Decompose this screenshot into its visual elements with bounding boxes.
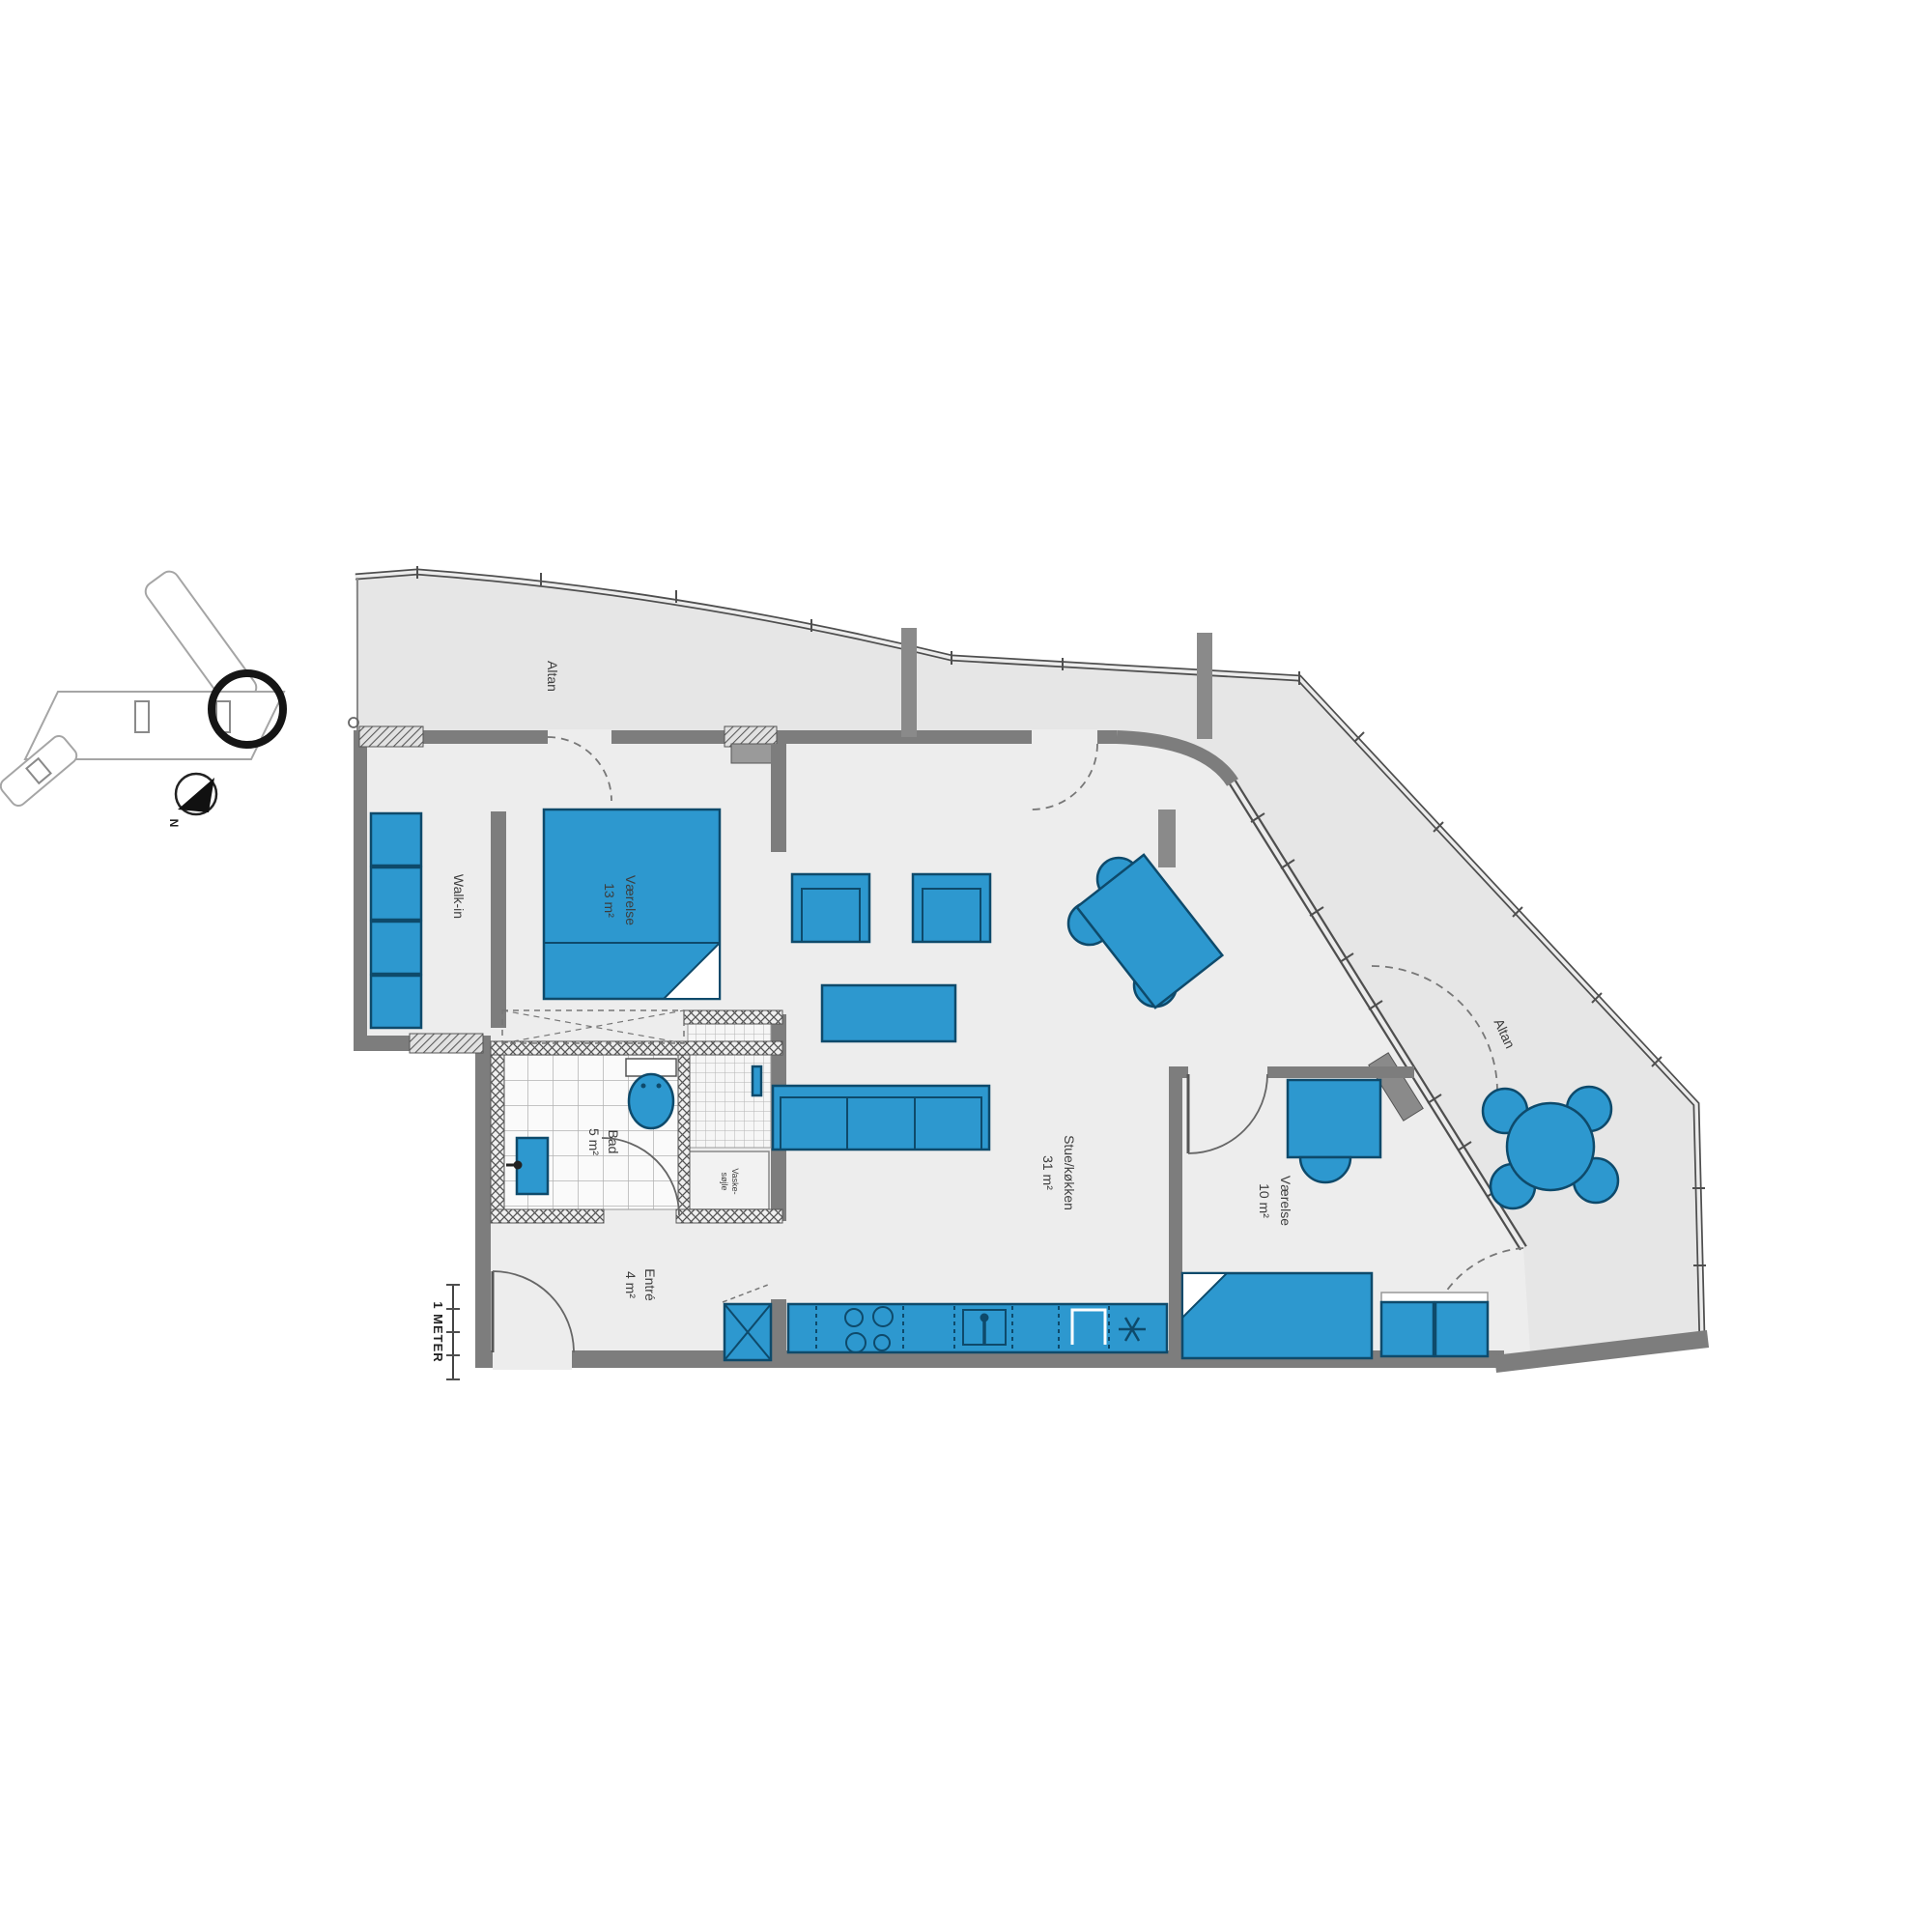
room-label-balcony-top: Altan (545, 661, 560, 692)
toilet-bowl (629, 1074, 673, 1128)
coffee-table (822, 985, 955, 1041)
locator-unit-marker-1 (135, 701, 149, 732)
shower-wall-top (684, 1010, 782, 1024)
scale-bar-label: 1 METER (431, 1301, 445, 1362)
room-label-laundry-line1: Vaske- (730, 1168, 740, 1194)
window-west-wing (410, 1034, 483, 1053)
floor-plan-drawing: N 1 METER Altan Walk-in Værelse 13 m² Ba… (0, 0, 1932, 1932)
room-label-entry: Entré (642, 1268, 658, 1301)
sink-drain (514, 1161, 523, 1170)
bedroom2-north-wall-b (1267, 1066, 1414, 1078)
room-label-bedroom1: Værelse (623, 875, 639, 925)
north-arrow-icon (178, 778, 214, 812)
shower-fixture (753, 1066, 761, 1095)
north-compass: N (167, 774, 216, 827)
bathroom-wall-bottom-left (491, 1209, 604, 1223)
scale-bar: 1 METER (431, 1285, 460, 1379)
bathroom-wall-left (491, 1055, 504, 1223)
west-lower-wall (475, 1036, 491, 1368)
toilet (626, 1059, 676, 1128)
room-area-entry: 4 m² (623, 1271, 639, 1298)
room-label-laundry-line2: søjle (720, 1172, 729, 1190)
toilet-button-left (641, 1084, 646, 1089)
walkin-divider-wall (491, 811, 506, 1028)
dresser-2 (1435, 1302, 1488, 1356)
armchair-1 (792, 874, 869, 942)
armchair-2 (913, 874, 990, 942)
dresser-1 (1381, 1302, 1434, 1356)
entrance-door-opening (493, 1349, 572, 1370)
dresser-shelf (1381, 1293, 1488, 1302)
room-area-bedroom2: 10 m² (1257, 1183, 1272, 1218)
floor-plan-page: N 1 METER Altan Walk-in Værelse 13 m² Ba… (0, 0, 1932, 1932)
room-label-bedroom2: Værelse (1278, 1176, 1293, 1226)
living-balcony-door-opening (1032, 729, 1097, 745)
room-label-bathroom: Bad (606, 1130, 621, 1154)
room-area-living-kitchen: 31 m² (1040, 1155, 1056, 1190)
sofa (773, 1086, 989, 1150)
radiator (731, 744, 776, 763)
living-west-wall-upper (771, 744, 786, 852)
west-wall (354, 737, 367, 1051)
building-locator-map (0, 568, 284, 810)
balcony-divider-wall-1 (901, 628, 917, 737)
bedroom2-west-wall (1169, 1066, 1182, 1352)
kitchen-wall-stub (771, 1299, 786, 1352)
balcony-divider-wall-2 (1197, 633, 1212, 739)
bedroom2-north-wall-a (1169, 1066, 1188, 1078)
living-wall-stub (1158, 810, 1176, 867)
room-area-bedroom1: 13 m² (602, 883, 617, 918)
dressers (1381, 1293, 1488, 1356)
bathroom-divider-wall (678, 1055, 690, 1209)
room-label-living-kitchen: Stue/køkken (1062, 1135, 1077, 1210)
room-area-bathroom: 5 m² (586, 1128, 602, 1155)
bedroom1-balcony-door-opening (548, 729, 611, 745)
locator-wing-diagonal (142, 568, 260, 712)
toilet-button-right (657, 1084, 662, 1089)
bathroom-wall-bottom-right (676, 1209, 782, 1223)
balcony-table (1507, 1103, 1594, 1190)
window-facade-left (359, 726, 423, 747)
walkin-wardrobe (371, 813, 421, 1028)
room-label-walk-in: Walk-in (451, 874, 467, 919)
single-bed (1182, 1273, 1372, 1358)
compass-north-label: N (167, 819, 181, 828)
